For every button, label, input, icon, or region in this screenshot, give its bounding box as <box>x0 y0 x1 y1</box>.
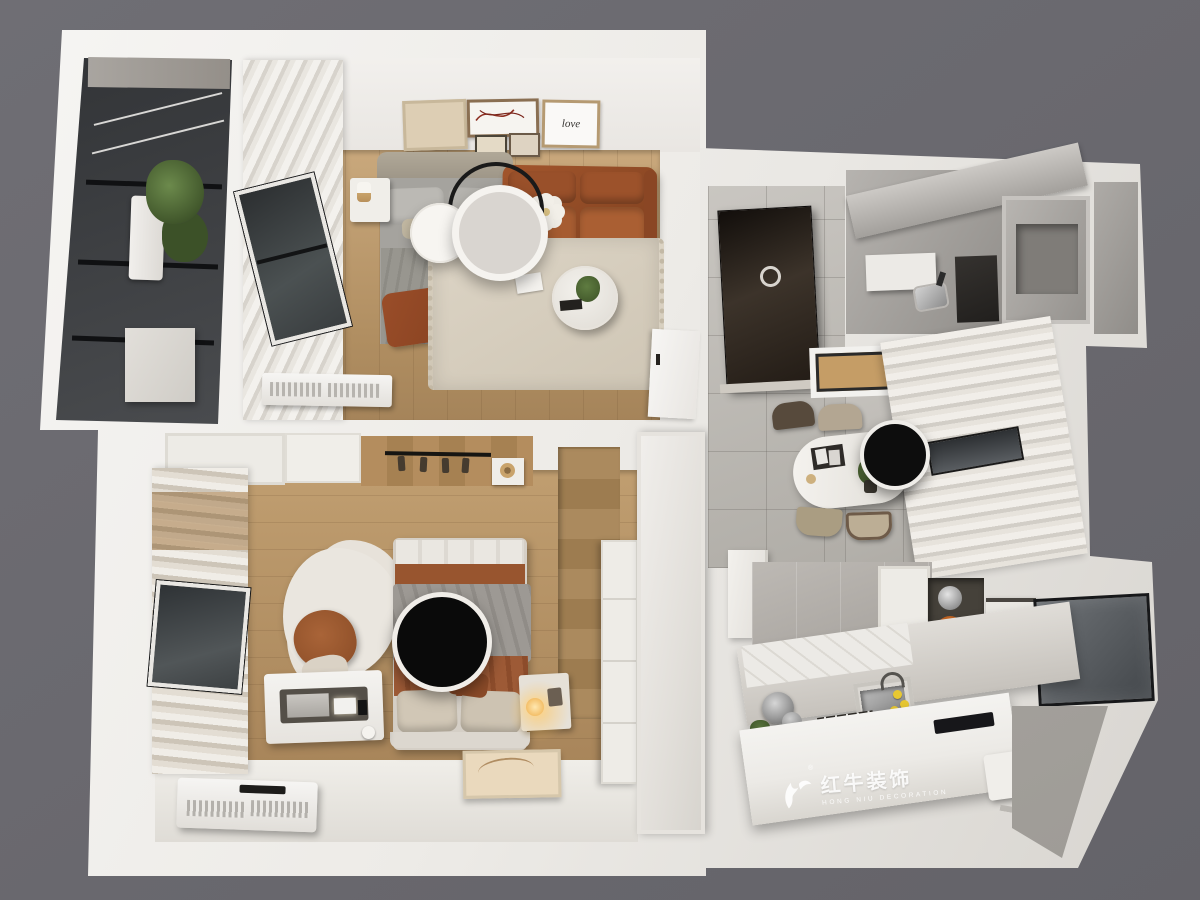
tray-book <box>815 448 828 465</box>
balcony-storage-cabinet <box>125 328 195 402</box>
bathroom-marble-wedge <box>1094 182 1138 334</box>
pendant-lamp-ring-disc <box>452 185 548 281</box>
bull-swoosh-icon <box>779 776 816 813</box>
bedroom-b-wall-cabinet <box>285 433 361 483</box>
red-scribble-art <box>470 102 530 129</box>
tablet <box>334 698 357 715</box>
phone <box>358 700 368 715</box>
laptop <box>287 693 330 717</box>
watermark-text-block: 红牛装饰 HONG NIU DECORATION <box>820 766 949 807</box>
sliding-door-panel <box>637 432 705 834</box>
ac-vent-grille <box>251 800 310 818</box>
sofa-back-cushion <box>580 172 644 204</box>
clothes-hanger <box>420 457 428 472</box>
bathroom-mirror-cabinet <box>865 253 936 291</box>
glowing-night-lamp <box>526 698 544 716</box>
bed-pillow <box>396 689 457 733</box>
terracotta-blanket-band <box>395 564 525 586</box>
dining-black-pendant-lamp <box>860 420 930 490</box>
floorplan-render-canvas: love <box>0 0 1200 900</box>
round-hat <box>500 463 515 478</box>
black-round-pendant-lamp <box>392 592 492 692</box>
nightstand-speaker <box>547 687 563 706</box>
balcony-marble-sill <box>88 57 230 89</box>
ac-vent-grille <box>328 383 380 398</box>
steel-pot <box>938 586 962 610</box>
folded-duvet <box>396 540 524 566</box>
balcony-plant <box>146 160 204 224</box>
ac-vent-grille <box>270 382 322 397</box>
registered-trademark-mark: ® <box>808 764 814 771</box>
desk-mug <box>362 726 375 739</box>
dining-chair-beige <box>817 403 862 431</box>
door-handle <box>656 354 660 365</box>
bedroom-a-door <box>648 329 701 419</box>
shower-niche <box>1016 224 1078 294</box>
teapot <box>806 474 816 484</box>
ac-control-strip <box>239 785 285 795</box>
white-dresser <box>601 540 638 784</box>
tray-book <box>828 450 840 466</box>
dining-chair-beige <box>795 506 843 537</box>
bedroom-a-ac-unit <box>262 373 393 407</box>
wall-art-frame-small-right <box>509 133 540 157</box>
coffee-table-book <box>560 299 583 311</box>
wall-art-frame-abstract <box>402 99 468 151</box>
dining-chair-beige-brown <box>846 511 893 541</box>
shower-dark-glass <box>955 255 999 322</box>
clothes-hanger <box>397 456 405 471</box>
ac-vent-grille <box>187 800 246 818</box>
love-script-text: love <box>562 118 581 130</box>
entry-glass-wardrobe <box>717 206 820 391</box>
bedroom-a-table-lamp <box>357 182 371 202</box>
bedroom-b-window <box>148 580 251 694</box>
lemon <box>893 690 902 699</box>
wall-art-frame-scribble <box>467 98 540 137</box>
bed-headboard-bottom <box>390 732 530 748</box>
clothes-hanger <box>442 458 450 473</box>
wall-art-frame-love: love <box>542 99 601 148</box>
bedroom-b-ac-unit <box>176 778 318 833</box>
bedroom-b-tan-curtain-layer <box>152 492 248 550</box>
clothes-hanger <box>461 458 469 473</box>
